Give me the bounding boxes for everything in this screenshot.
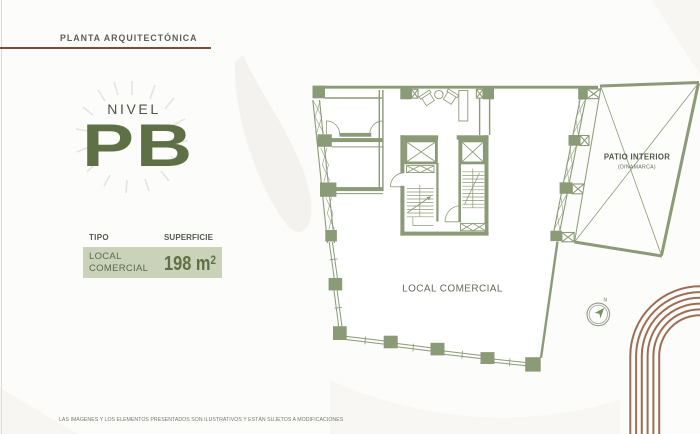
svg-text:N: N xyxy=(604,298,608,304)
svg-text:LOCAL COMERCIAL: LOCAL COMERCIAL xyxy=(402,284,503,295)
svg-text:(DINAMARCA): (DINAMARCA) xyxy=(618,165,656,171)
svg-text:PATIO INTERIOR: PATIO INTERIOR xyxy=(604,153,670,162)
